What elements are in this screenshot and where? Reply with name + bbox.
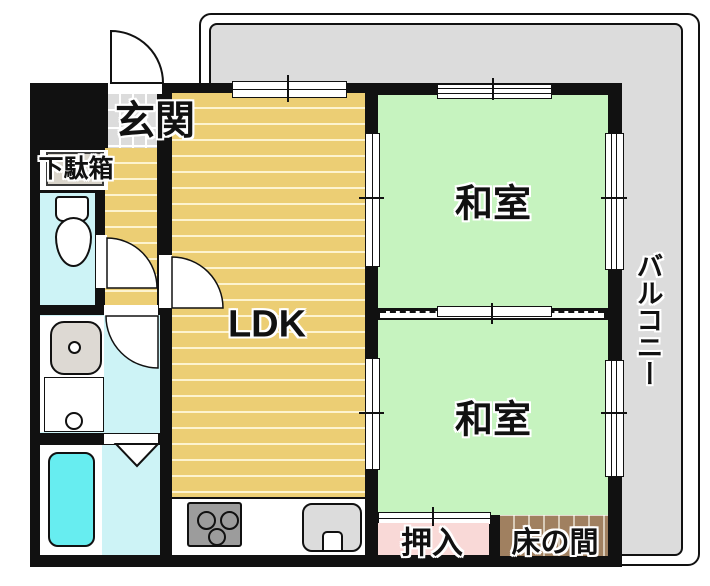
window-washitsu-top	[437, 84, 552, 99]
tokonoma-label: 床の間	[511, 519, 598, 561]
washing-machine-drain	[65, 412, 83, 430]
kitchen-sink-drainboard	[322, 531, 343, 550]
shower-area	[102, 445, 160, 555]
stove-burner	[208, 528, 226, 546]
oshiire-label: 押入	[401, 518, 463, 563]
stove	[187, 502, 242, 547]
floorplan: 玄関 下駄箱 LDK 和室 和室 押入 床の間 バルコニー	[0, 0, 710, 586]
washbasin-drain	[68, 341, 81, 354]
stove-burner	[220, 511, 239, 530]
entrance-door-arc	[111, 31, 163, 83]
fusuma-door-top	[365, 133, 380, 267]
window-ldk-top	[232, 81, 347, 98]
getabako-label: 下駄箱	[38, 149, 113, 185]
ldk-doorway	[159, 255, 172, 308]
room-ldk	[172, 93, 365, 497]
fusuma-door-bottom	[365, 358, 380, 470]
washitsu-top-label: 和室	[455, 173, 531, 228]
toilet-doorway	[96, 235, 107, 288]
washitsu-bottom-label: 和室	[455, 389, 531, 444]
window-washitsu-right-bottom	[605, 360, 624, 477]
bathtub	[48, 452, 95, 547]
washroom-doorway	[104, 305, 158, 316]
ldk-label: LDK	[228, 304, 306, 347]
balcony-label: バルコニー	[629, 252, 668, 387]
divider-door-panel	[437, 306, 552, 317]
bathroom-doorway	[104, 434, 158, 444]
window-washitsu-right-top	[605, 133, 624, 270]
stove-burner	[197, 511, 216, 530]
genkan-label: 玄関	[115, 88, 195, 146]
